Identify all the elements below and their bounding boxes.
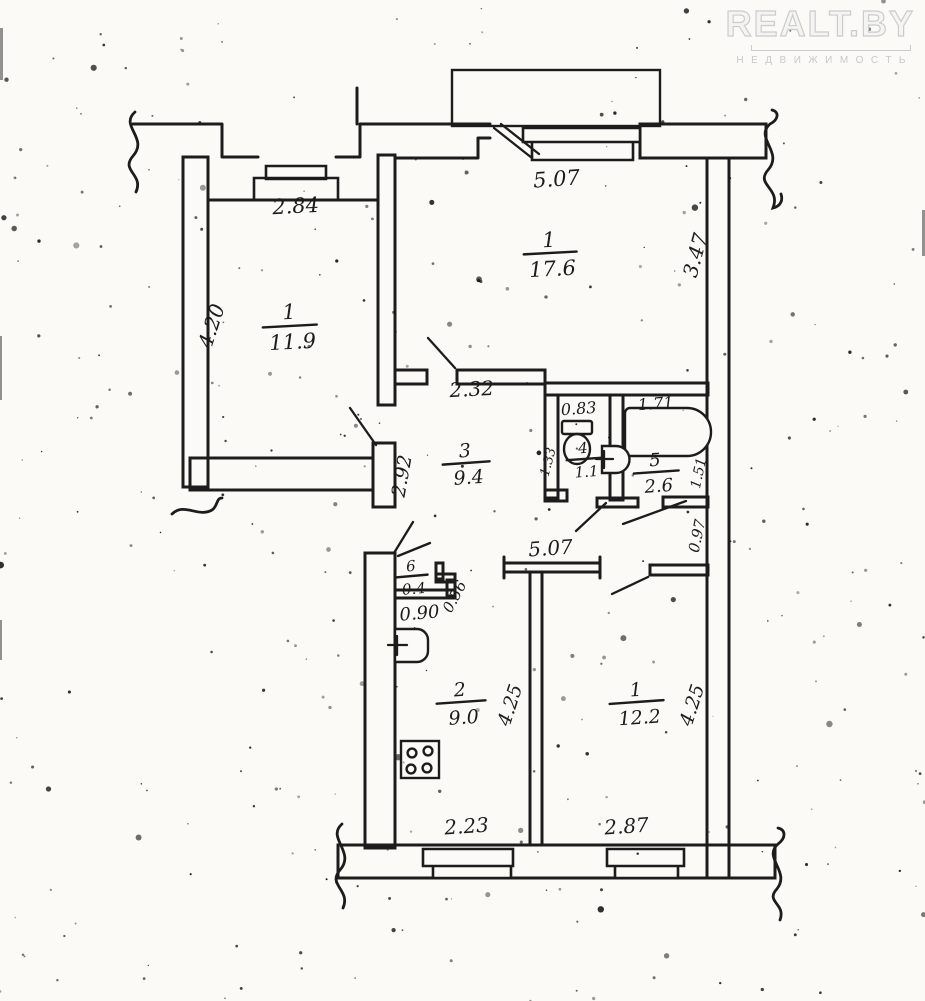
room-label-room-bottom: 1 12.2 <box>608 677 665 731</box>
dim-top-width: 5.07 <box>532 165 581 192</box>
watermark-subtitle: НЕДВИЖИМОСТЬ <box>726 55 913 66</box>
floorplan-svg: 5.07 3.47 2.84 4.20 2.32 2.92 0.83 1.33 … <box>0 0 925 1001</box>
dim-lower-width: 5.07 <box>527 534 573 561</box>
dim-wc-width: 0.83 <box>560 398 597 419</box>
dim-kitchen-depth: 4.25 <box>493 682 527 730</box>
watermark: REALT.BY НЕДВИЖИМОСТЬ <box>726 6 915 66</box>
room-number: 1 <box>542 228 557 253</box>
room-area: 0.4 <box>401 579 426 599</box>
room-label-hall: 3 9.4 <box>441 438 491 490</box>
balcony-outline <box>452 70 660 126</box>
room-area: 9.0 <box>448 706 480 730</box>
room-area: 2.6 <box>643 475 674 498</box>
room-number: 2 <box>452 679 467 702</box>
room-number: 3 <box>458 440 472 463</box>
dim-bath-width: 1.71 <box>637 393 674 414</box>
dim-bottom-room-width: 2.87 <box>602 812 649 839</box>
room-area: 9.4 <box>453 466 485 490</box>
room-label-kitchen: 2 9.0 <box>435 677 487 730</box>
stove-icon <box>401 741 439 778</box>
room-area: 11.9 <box>269 329 317 355</box>
watermark-brand: REALT.BY <box>726 6 915 42</box>
kitchen-sink-icon <box>388 629 428 662</box>
dim-bottom-room-depth: 4.25 <box>675 682 709 730</box>
room-number: 4 <box>576 439 588 458</box>
room-area: 12.2 <box>618 705 662 730</box>
bath-sink-icon <box>596 446 630 473</box>
room-number: 1 <box>282 300 297 325</box>
room-number: 6 <box>405 557 417 576</box>
door-leaves <box>350 124 686 594</box>
scanned-floorplan-page: { "watermark": { "brand": "REALT.BY", "s… <box>0 0 925 1001</box>
room-number: 5 <box>648 450 661 472</box>
dim-closet-front: 0.90 <box>399 601 441 625</box>
room-number: 1 <box>629 679 643 702</box>
dim-kitchen-width: 2.23 <box>442 812 489 839</box>
room-label-living-top: 1 17.6 <box>522 227 578 283</box>
bathtub-icon <box>625 408 711 456</box>
room-area: 17.6 <box>528 256 576 282</box>
dim-hall-width: 2.32 <box>448 376 495 402</box>
watermark-bracket <box>751 45 911 51</box>
break-marks <box>129 110 784 920</box>
room-area: 1.1 <box>574 462 599 482</box>
dim-left-width: 2.84 <box>271 193 320 219</box>
